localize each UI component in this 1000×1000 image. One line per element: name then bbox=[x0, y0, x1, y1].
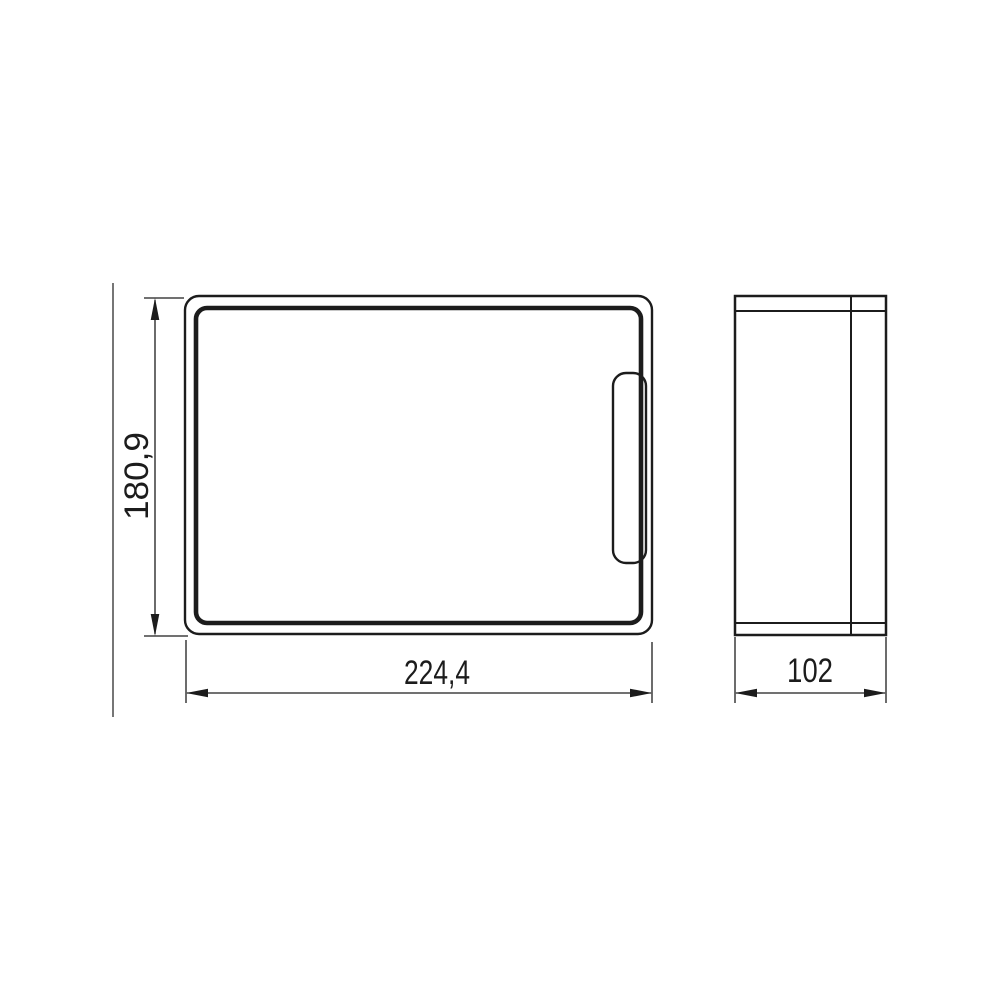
linework-group bbox=[113, 283, 886, 717]
dimension-drawing-canvas: 180,9 224,4 102 bbox=[0, 0, 1000, 1000]
depth-dimension-value: 102 bbox=[787, 652, 833, 690]
side-view bbox=[735, 296, 886, 635]
height-arrow-up-icon bbox=[151, 298, 160, 320]
height-dimension-value: 180,9 bbox=[118, 432, 156, 520]
width-arrow-right-icon bbox=[630, 689, 652, 698]
width-arrow-left-icon bbox=[186, 689, 208, 698]
height-arrow-down-icon bbox=[151, 614, 160, 636]
depth-arrow-right-icon bbox=[864, 689, 886, 698]
enclosure-dimension-drawing: 180,9 224,4 102 bbox=[0, 0, 1000, 1000]
front-outer-outline bbox=[185, 296, 652, 634]
side-outer-outline bbox=[735, 296, 886, 635]
front-inner-panel-outline bbox=[196, 308, 641, 623]
labels-group: 180,9 224,4 102 bbox=[118, 432, 833, 692]
width-dimension-value: 224,4 bbox=[404, 654, 470, 692]
front-view bbox=[185, 296, 652, 634]
arrowheads-group bbox=[151, 298, 886, 697]
depth-arrow-left-icon bbox=[735, 689, 757, 698]
